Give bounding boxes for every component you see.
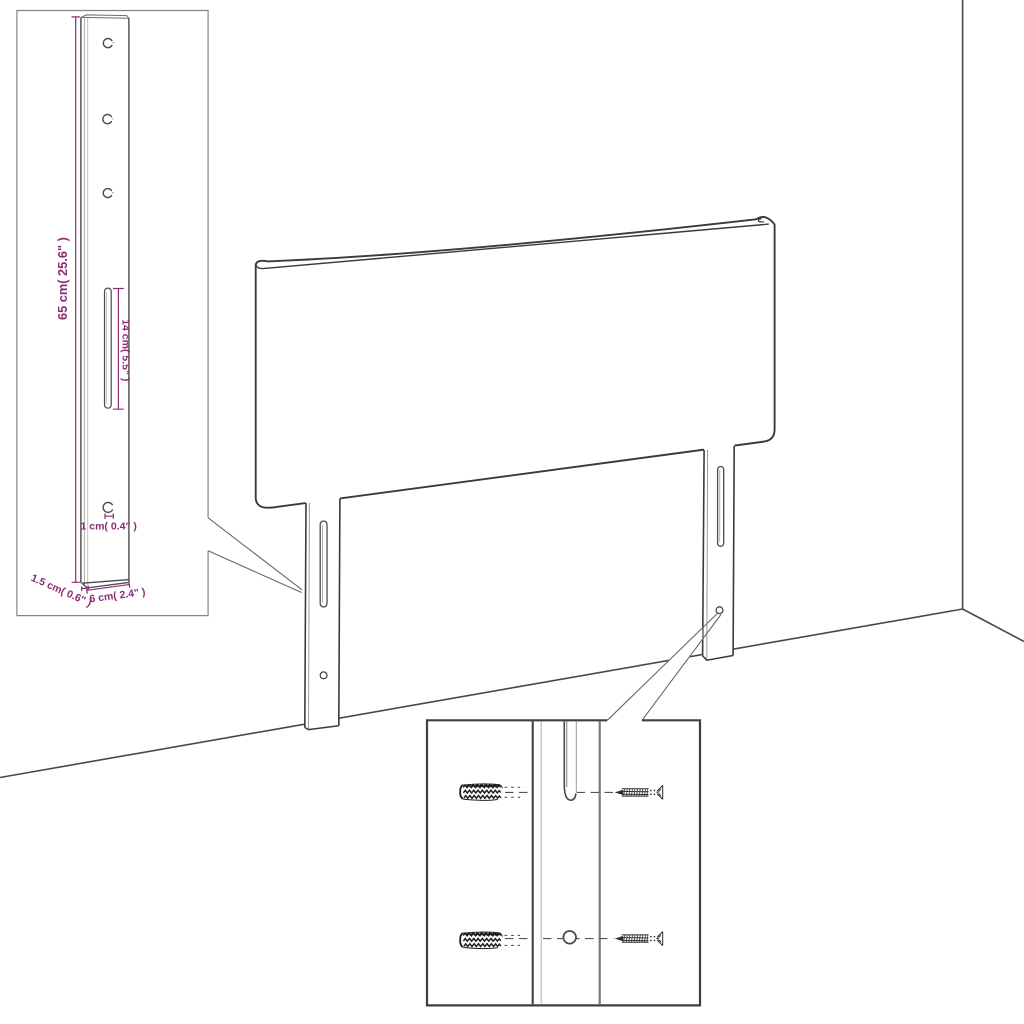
svg-text:14 cm( 5.5" ): 14 cm( 5.5" )	[120, 319, 132, 381]
svg-text:1 cm( 0.4" ): 1 cm( 0.4" )	[81, 520, 137, 532]
svg-text:65 cm( 25.6" ): 65 cm( 25.6" )	[55, 237, 70, 320]
